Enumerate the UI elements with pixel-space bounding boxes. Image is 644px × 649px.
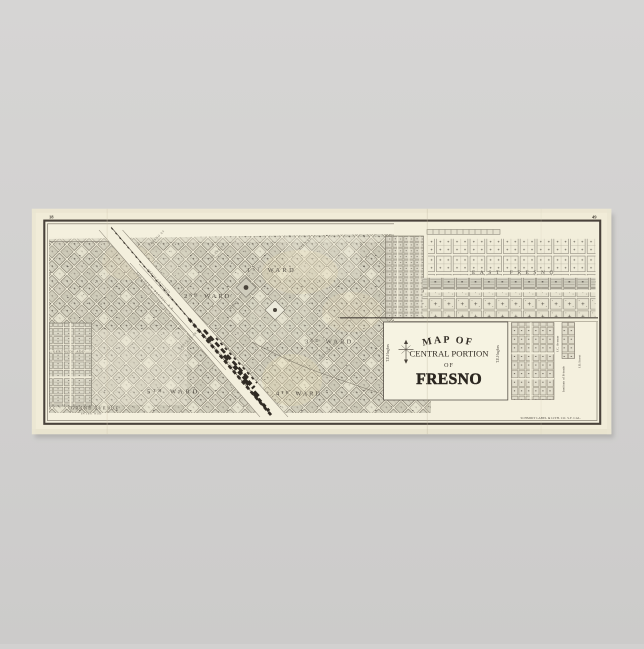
svg-text:64 feet wide: 64 feet wide bbox=[81, 413, 102, 416]
svg-text:FRESNO: FRESNO bbox=[416, 371, 482, 388]
svg-text:CENTRAL PORTION: CENTRAL PORTION bbox=[409, 349, 489, 359]
svg-text:OF: OF bbox=[444, 363, 454, 369]
svg-text:GERTRUDE ADD: GERTRUDE ADD bbox=[53, 349, 85, 353]
svg-text:J.C. Avenue: J.C. Avenue bbox=[556, 335, 560, 352]
svg-text:49: 49 bbox=[592, 215, 597, 220]
svg-text:J.B.Street: J.B.Street bbox=[578, 355, 582, 368]
svg-text:T.E.Hughes: T.E.Hughes bbox=[386, 344, 390, 362]
svg-text:EAST FRESNO: EAST FRESNO bbox=[472, 270, 558, 276]
svg-text:GRAND AVENUE: GRAND AVENUE bbox=[71, 406, 119, 411]
svg-text:SCHMIDT LABEL & LITH. CO. S.F.: SCHMIDT LABEL & LITH. CO. S.F. CAL. bbox=[520, 416, 581, 420]
svg-text:18: 18 bbox=[49, 215, 54, 220]
svg-text:T.E.Hughes: T.E.Hughes bbox=[496, 345, 500, 363]
svg-text:Institute of Friends: Institute of Friends bbox=[562, 366, 566, 392]
